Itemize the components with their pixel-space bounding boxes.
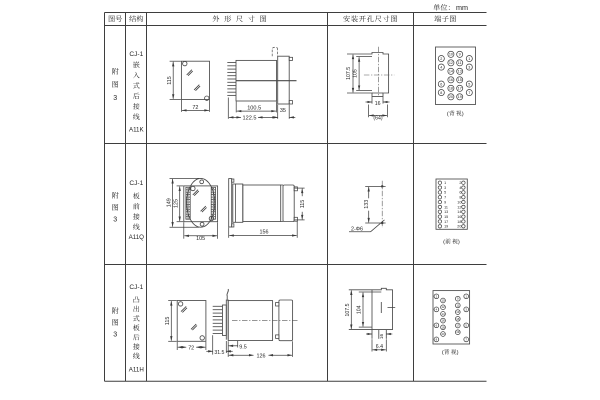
svg-text:1: 1 — [444, 181, 446, 185]
svg-text:A11Q: A11Q — [129, 234, 145, 241]
svg-text:107.5: 107.5 — [345, 303, 351, 316]
svg-text:16: 16 — [379, 334, 384, 340]
svg-text:126: 126 — [257, 353, 266, 359]
svg-text:133: 133 — [364, 200, 370, 209]
svg-text:15: 15 — [456, 317, 460, 321]
svg-text:(64): (64) — [373, 116, 382, 122]
svg-text:12: 12 — [457, 205, 461, 209]
svg-text:4: 4 — [440, 65, 442, 69]
svg-text:105: 105 — [196, 236, 205, 242]
svg-text:CJ-1: CJ-1 — [129, 180, 143, 187]
svg-text:18: 18 — [441, 325, 445, 329]
svg-text:3: 3 — [444, 186, 446, 190]
svg-text:16: 16 — [457, 215, 461, 219]
svg-text:8: 8 — [459, 196, 461, 200]
svg-text:1: 1 — [468, 57, 470, 61]
svg-text:): ) — [457, 350, 459, 356]
svg-text:3: 3 — [113, 95, 117, 102]
svg-text:A11K: A11K — [129, 126, 145, 133]
svg-text:): ) — [458, 239, 460, 245]
svg-text:16: 16 — [449, 78, 453, 82]
svg-text:A11H: A11H — [129, 366, 144, 373]
svg-text:115: 115 — [300, 200, 306, 209]
svg-text:7: 7 — [444, 196, 446, 200]
svg-text:17: 17 — [456, 324, 460, 328]
svg-text:11: 11 — [456, 303, 459, 307]
svg-text:6: 6 — [440, 82, 442, 86]
svg-text:13: 13 — [458, 70, 462, 74]
svg-text:18: 18 — [449, 87, 453, 91]
svg-text:17: 17 — [444, 220, 448, 224]
svg-text:CJ-1: CJ-1 — [129, 51, 143, 58]
svg-text:16: 16 — [441, 319, 445, 323]
svg-text:9.5: 9.5 — [239, 344, 247, 350]
svg-text:14: 14 — [457, 210, 461, 214]
svg-text:12: 12 — [449, 61, 453, 65]
svg-text:72: 72 — [192, 105, 198, 111]
svg-text:2: 2 — [440, 57, 442, 61]
svg-text:15: 15 — [444, 215, 448, 219]
svg-text:8: 8 — [440, 91, 442, 95]
svg-text:10: 10 — [449, 53, 453, 57]
svg-text:20: 20 — [441, 332, 445, 336]
svg-text:13: 13 — [456, 310, 460, 314]
svg-text:3: 3 — [113, 217, 117, 224]
svg-text:(: ( — [447, 111, 449, 117]
svg-text:18: 18 — [457, 220, 461, 224]
svg-text:19: 19 — [444, 225, 448, 229]
svg-text:35: 35 — [280, 108, 286, 114]
svg-text:149: 149 — [167, 198, 173, 207]
svg-text:3: 3 — [468, 65, 470, 69]
svg-text:14: 14 — [441, 312, 445, 316]
svg-text:13: 13 — [444, 210, 448, 214]
svg-text:115: 115 — [167, 76, 173, 85]
svg-text:2: 2 — [459, 181, 461, 185]
svg-text:31.5: 31.5 — [214, 350, 224, 356]
svg-text:6: 6 — [459, 191, 461, 195]
svg-text:(: ( — [443, 239, 445, 245]
svg-text:156: 156 — [260, 230, 269, 236]
svg-text:107.5: 107.5 — [346, 67, 352, 80]
svg-text:19: 19 — [456, 330, 460, 334]
svg-text:mm: mm — [456, 3, 468, 12]
svg-text:11: 11 — [444, 205, 448, 209]
svg-text:20: 20 — [457, 225, 461, 229]
svg-text:10: 10 — [441, 299, 445, 303]
svg-text:9: 9 — [459, 53, 461, 57]
svg-text:10: 10 — [457, 200, 461, 204]
svg-text:9: 9 — [444, 200, 446, 204]
svg-text:11: 11 — [458, 61, 462, 65]
svg-text:3: 3 — [113, 331, 117, 338]
svg-text:7: 7 — [468, 91, 470, 95]
svg-text:5: 5 — [444, 191, 446, 195]
svg-text:4: 4 — [459, 186, 461, 190]
svg-text:): ) — [462, 111, 464, 117]
svg-text:17: 17 — [458, 87, 462, 91]
svg-text:125: 125 — [174, 199, 180, 208]
svg-text:6.4: 6.4 — [376, 344, 383, 350]
svg-text:122.5: 122.5 — [243, 116, 257, 122]
svg-text:14: 14 — [449, 70, 453, 74]
svg-text:CJ-1: CJ-1 — [129, 284, 143, 291]
svg-text:12: 12 — [441, 305, 445, 309]
svg-text:20: 20 — [449, 95, 453, 99]
svg-text:72: 72 — [188, 345, 194, 351]
svg-text:19: 19 — [458, 95, 462, 99]
svg-text:15: 15 — [458, 78, 462, 82]
svg-text:5: 5 — [468, 82, 470, 86]
svg-text:100.5: 100.5 — [247, 105, 261, 111]
svg-text:16: 16 — [375, 101, 381, 107]
svg-text:115: 115 — [165, 317, 171, 326]
svg-text:104: 104 — [357, 305, 363, 314]
svg-text:105: 105 — [352, 69, 358, 78]
svg-text:(: ( — [442, 350, 444, 356]
